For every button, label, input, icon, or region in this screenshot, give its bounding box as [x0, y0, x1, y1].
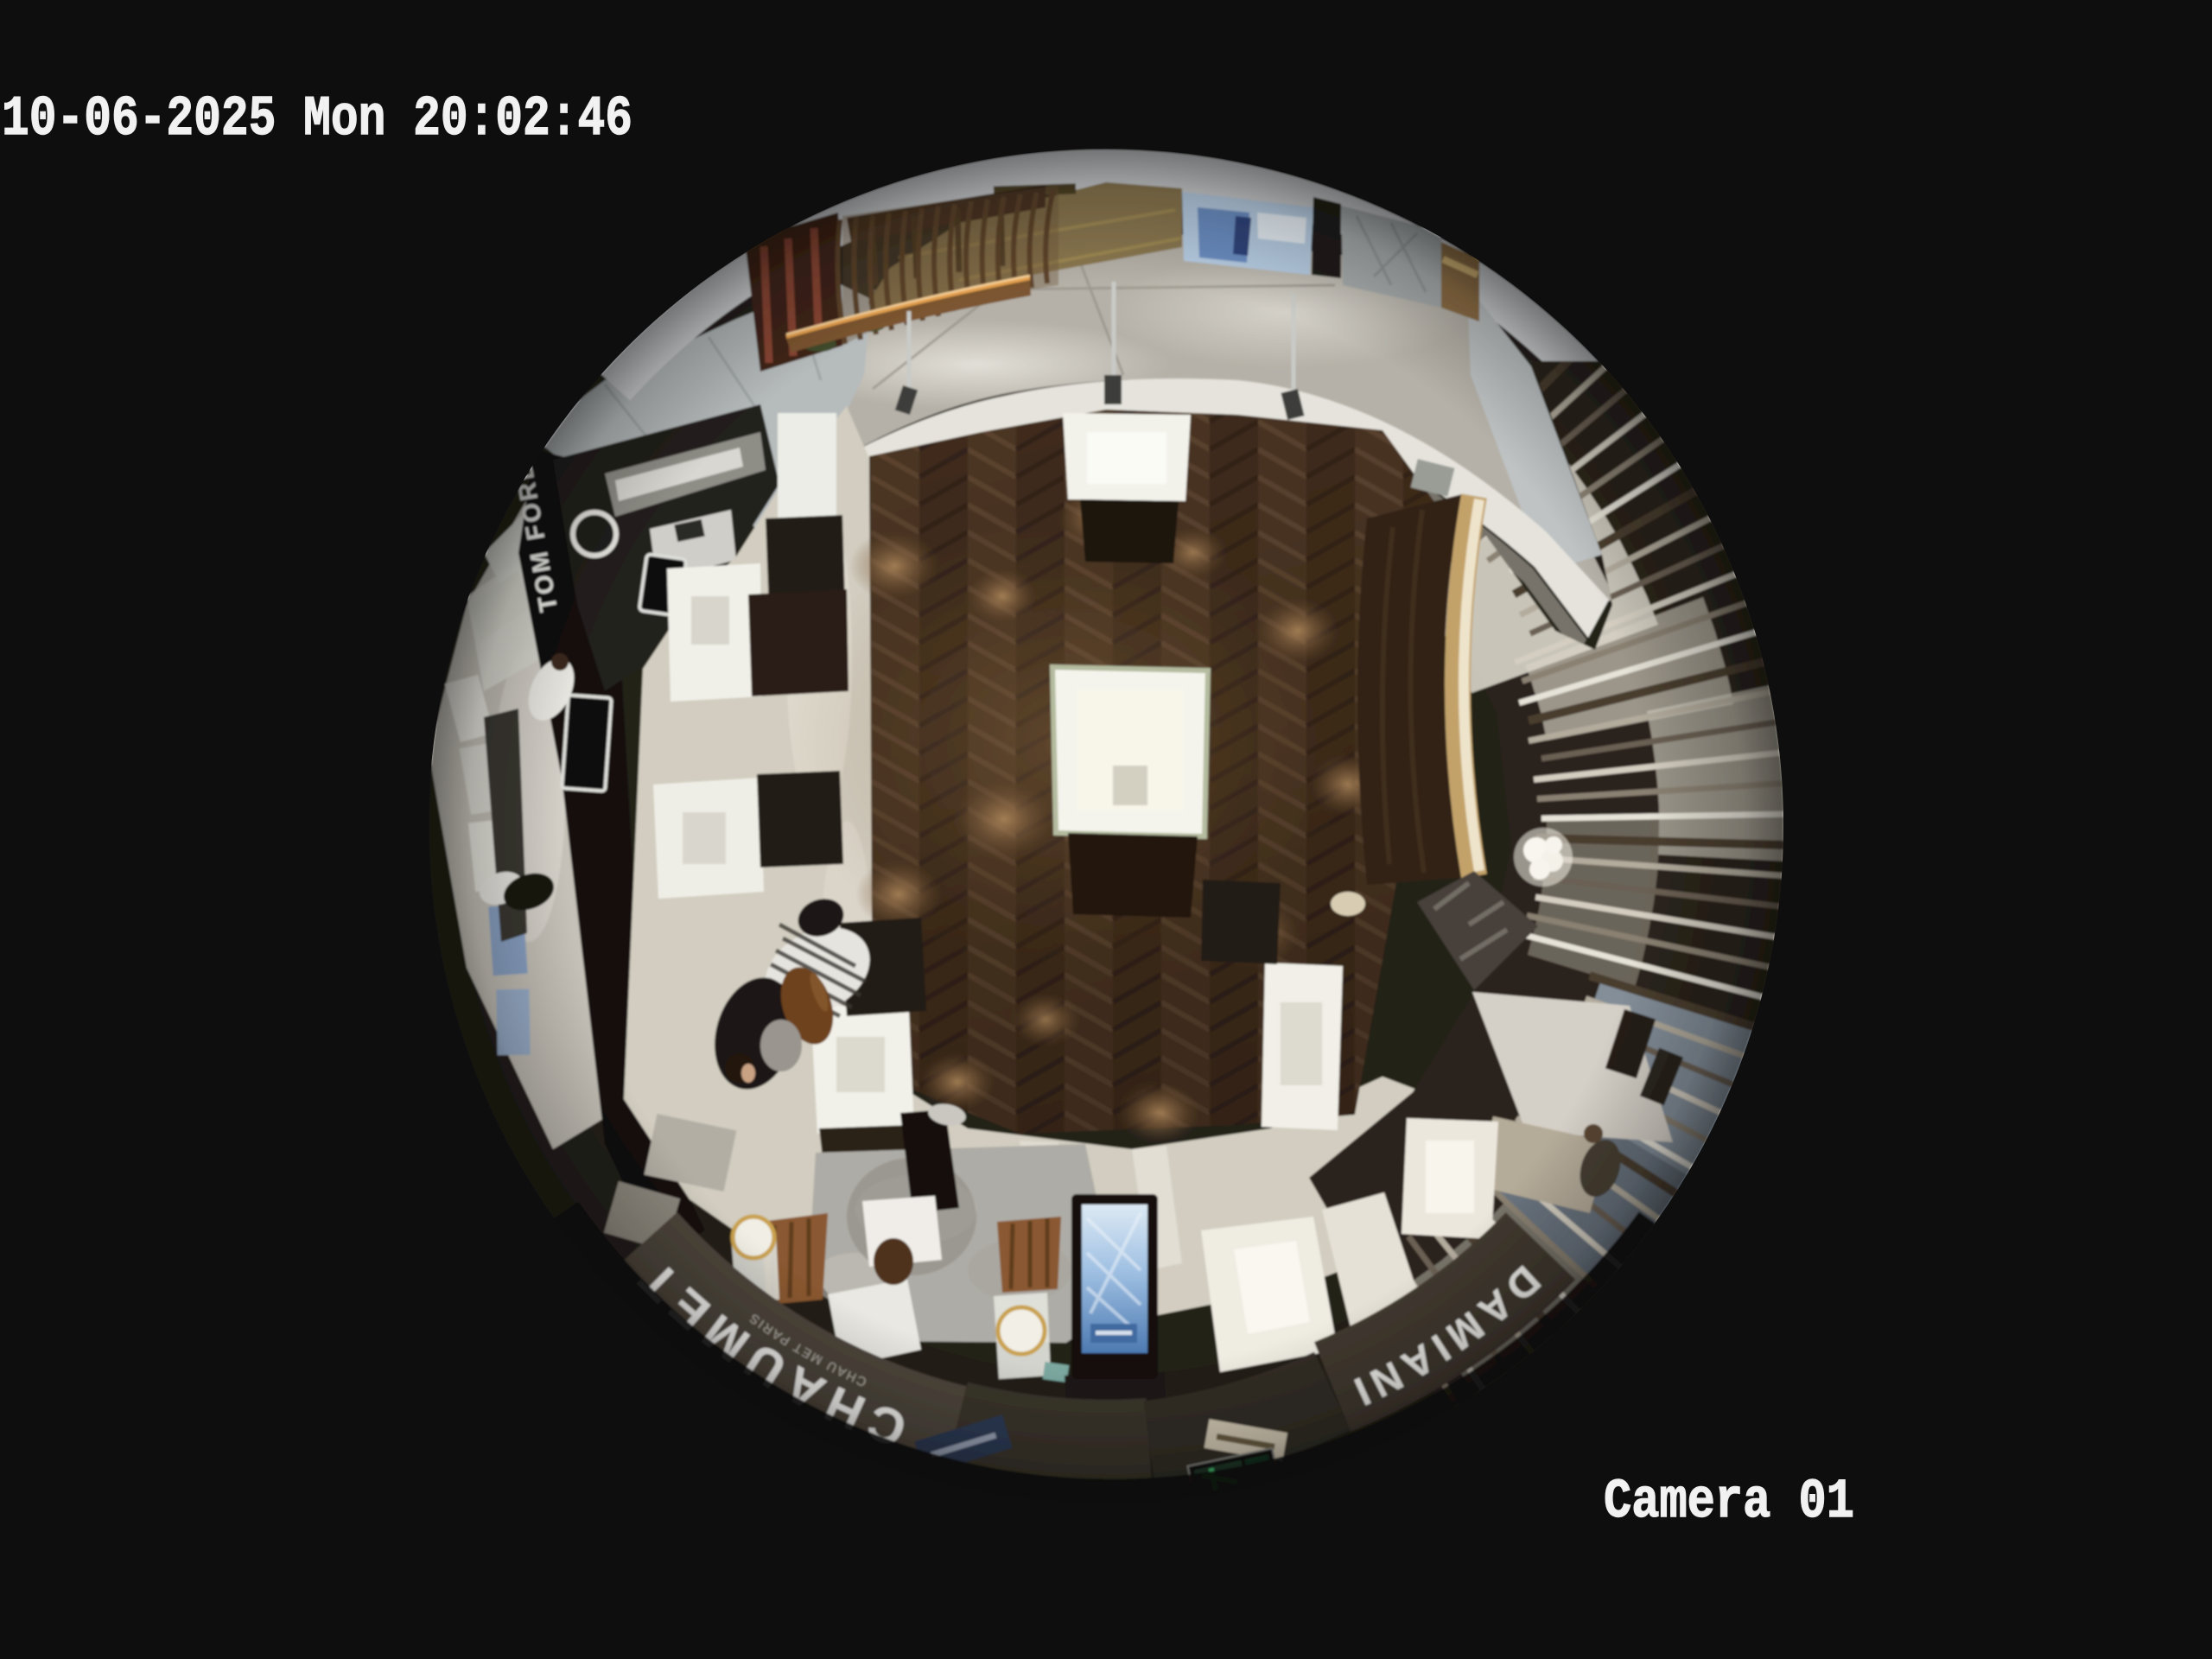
svg-text:Camera 01: Camera 01: [1604, 1471, 1854, 1534]
svg-text:10-06-2025 Mon 20:02:46: 10-06-2025 Mon 20:02:46: [2, 87, 632, 151]
